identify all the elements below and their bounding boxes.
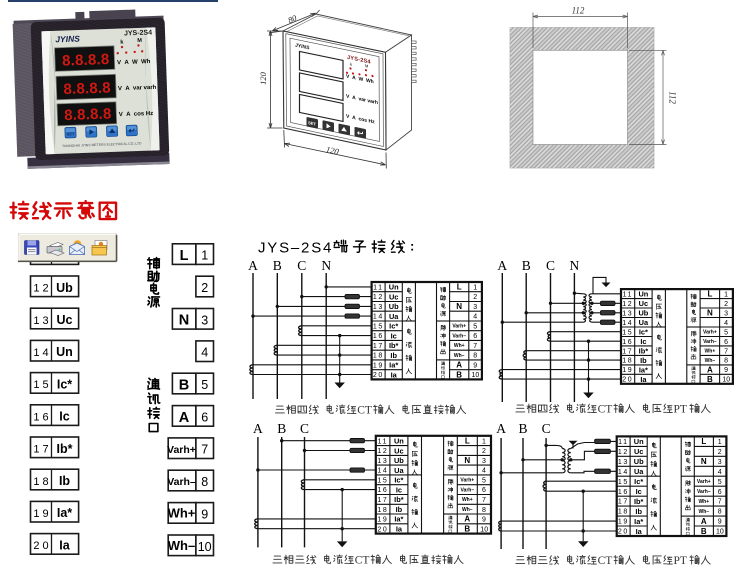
svg-text:5: 5 <box>473 323 477 330</box>
svg-text:20: 20 <box>377 526 388 533</box>
svg-text:1 2: 1 2 <box>33 283 48 295</box>
svg-text:11: 11 <box>373 285 383 292</box>
svg-text:B: B <box>701 527 707 536</box>
svg-text:Ic*: Ic* <box>394 476 403 485</box>
svg-text:Ub: Ub <box>56 281 73 295</box>
svg-text:Ub: Ub <box>634 457 644 466</box>
svg-text:17: 17 <box>618 499 629 506</box>
svg-text:Un: Un <box>394 437 404 446</box>
svg-text:Ib*: Ib* <box>394 495 404 504</box>
svg-text:3: 3 <box>201 313 208 327</box>
svg-text:Varh+: Varh+ <box>703 330 717 336</box>
svg-text:Ia*: Ia* <box>394 515 403 524</box>
svg-text:SET: SET <box>67 131 76 136</box>
svg-text:Ib: Ib <box>396 505 403 514</box>
svg-text:Ua: Ua <box>389 312 399 321</box>
svg-text:V A W Wh: V A W Wh <box>117 59 151 66</box>
svg-text:Varh–: Varh– <box>167 476 196 488</box>
svg-text:Varh–: Varh– <box>452 333 466 339</box>
svg-text:L: L <box>457 283 462 292</box>
svg-text:4: 4 <box>724 320 728 327</box>
svg-text:1 8: 1 8 <box>33 476 48 488</box>
svg-text:120: 120 <box>258 71 268 85</box>
svg-text:1: 1 <box>473 285 477 292</box>
svg-text:A: A <box>496 421 506 436</box>
svg-text:1 7: 1 7 <box>33 444 48 456</box>
svg-text:B: B <box>518 421 527 436</box>
svg-text:112: 112 <box>572 6 585 16</box>
svg-text:Ua: Ua <box>394 466 404 475</box>
svg-text:Ia*: Ia* <box>639 365 648 374</box>
svg-text:12: 12 <box>373 294 384 301</box>
svg-text:16: 16 <box>622 339 633 346</box>
svg-text:2 0: 2 0 <box>33 540 48 552</box>
svg-text:10: 10 <box>480 526 488 533</box>
svg-text:B: B <box>464 525 470 534</box>
svg-text:Ib*: Ib* <box>639 347 649 356</box>
svg-text:JYINS: JYINS <box>55 33 80 44</box>
svg-text:11: 11 <box>618 439 628 446</box>
svg-text:Ia: Ia <box>396 525 403 534</box>
svg-text:17: 17 <box>377 497 388 504</box>
svg-text:5: 5 <box>201 378 208 392</box>
svg-text:L: L <box>465 437 470 446</box>
svg-text:7: 7 <box>473 343 477 350</box>
svg-text:Ic*: Ic* <box>634 477 643 486</box>
svg-text:A: A <box>253 421 263 436</box>
svg-text:12: 12 <box>377 448 388 455</box>
svg-text:112: 112 <box>668 91 678 104</box>
svg-text:C: C <box>297 258 306 273</box>
svg-text:19: 19 <box>377 517 388 524</box>
svg-text:2: 2 <box>201 281 208 295</box>
svg-text:18: 18 <box>377 507 388 514</box>
svg-text:14: 14 <box>373 314 384 321</box>
svg-text:Ic: Ic <box>636 487 642 496</box>
svg-text:8.8.8.8: 8.8.8.8 <box>64 105 112 124</box>
svg-text:C: C <box>300 421 309 436</box>
svg-text:10: 10 <box>472 372 480 379</box>
svg-text:Ua: Ua <box>634 467 644 476</box>
svg-text:Wh+: Wh+ <box>705 349 716 355</box>
svg-text:A: A <box>497 258 507 273</box>
svg-text:Wh–: Wh– <box>705 358 716 364</box>
svg-text:Wh–: Wh– <box>699 509 710 515</box>
svg-text:A: A <box>701 517 707 526</box>
svg-text:1: 1 <box>201 249 208 263</box>
svg-text:Wh–: Wh– <box>462 507 473 513</box>
svg-text:20: 20 <box>618 529 629 536</box>
svg-text:15: 15 <box>622 329 633 336</box>
svg-text:3: 3 <box>724 310 728 317</box>
svg-text:Varh–: Varh– <box>703 339 717 345</box>
svg-text:4: 4 <box>482 468 486 475</box>
svg-text:Ia: Ia <box>640 375 647 384</box>
svg-text:Ic: Ic <box>59 410 69 424</box>
svg-text:16: 16 <box>618 489 629 496</box>
svg-text:L: L <box>180 248 189 264</box>
svg-text:Wh–: Wh– <box>454 353 465 359</box>
svg-text:Ia: Ia <box>59 538 70 552</box>
svg-text:5: 5 <box>718 479 722 486</box>
svg-text:15: 15 <box>618 479 629 486</box>
svg-text:17: 17 <box>622 348 633 355</box>
svg-text:C: C <box>546 258 555 273</box>
svg-text:Ia: Ia <box>636 527 643 536</box>
svg-text:A: A <box>248 258 258 273</box>
svg-text:Varh+: Varh+ <box>452 324 466 330</box>
svg-text:B: B <box>707 375 713 384</box>
svg-text:10: 10 <box>198 540 212 554</box>
svg-text:A: A <box>179 410 190 426</box>
svg-text:Wh+: Wh+ <box>698 499 709 505</box>
svg-text:20: 20 <box>373 372 384 379</box>
svg-text:N: N <box>707 309 713 318</box>
svg-text:15: 15 <box>377 477 388 484</box>
svg-text:Un: Un <box>389 283 399 292</box>
svg-text:C: C <box>542 421 551 436</box>
svg-text:Ib*: Ib* <box>389 341 399 350</box>
svg-text:5: 5 <box>482 477 486 484</box>
svg-text:Uc: Uc <box>639 299 648 308</box>
svg-text:JYS–2S4: JYS–2S4 <box>258 240 333 257</box>
svg-text:Uc: Uc <box>634 447 643 456</box>
svg-text:B: B <box>179 377 189 393</box>
svg-text:1 5: 1 5 <box>33 379 48 391</box>
svg-text:Uc: Uc <box>394 446 403 455</box>
svg-text:M: M <box>137 38 142 44</box>
svg-text:9: 9 <box>482 517 486 524</box>
svg-text:CT: CT <box>598 404 613 416</box>
svg-text:Wh+: Wh+ <box>168 506 196 521</box>
svg-text:7: 7 <box>482 497 486 504</box>
svg-text:10: 10 <box>716 529 724 536</box>
svg-text::: : <box>410 239 414 254</box>
svg-text:PT: PT <box>674 404 687 416</box>
svg-text:B: B <box>273 258 282 273</box>
svg-text:7: 7 <box>724 348 728 355</box>
svg-text:Ib*: Ib* <box>634 497 644 506</box>
svg-text:V A cos Hz: V A cos Hz <box>119 111 154 118</box>
svg-text:Un: Un <box>56 345 73 359</box>
svg-text:8: 8 <box>482 507 486 514</box>
svg-text:Varh+: Varh+ <box>697 479 711 485</box>
svg-text:15: 15 <box>373 323 384 330</box>
svg-text:B: B <box>277 421 286 436</box>
svg-text:Ib*: Ib* <box>57 442 73 456</box>
svg-text:A: A <box>464 515 470 524</box>
svg-text:11: 11 <box>623 291 633 298</box>
svg-text:6: 6 <box>718 489 722 496</box>
svg-text:N: N <box>321 258 331 273</box>
svg-text:Ib: Ib <box>390 351 397 360</box>
svg-text:14: 14 <box>622 320 633 327</box>
svg-text:CT: CT <box>357 405 372 417</box>
svg-text:19: 19 <box>622 367 633 374</box>
svg-text:4: 4 <box>201 346 208 360</box>
svg-text:Ia*: Ia* <box>634 517 643 526</box>
svg-text:13: 13 <box>618 459 629 466</box>
svg-text:1: 1 <box>482 438 486 445</box>
svg-text:3: 3 <box>482 458 486 465</box>
svg-text:Un: Un <box>634 437 644 446</box>
svg-text:12: 12 <box>618 449 629 456</box>
svg-text:Varh–: Varh– <box>697 489 711 495</box>
svg-text:9: 9 <box>473 362 477 369</box>
svg-text:1 9: 1 9 <box>33 508 48 520</box>
svg-text:2: 2 <box>718 449 722 456</box>
svg-text:Ic*: Ic* <box>389 322 398 331</box>
svg-text:3: 3 <box>718 459 722 466</box>
svg-text:Ib: Ib <box>59 474 70 488</box>
svg-text:9: 9 <box>718 519 722 526</box>
svg-text:Ic: Ic <box>640 337 646 346</box>
svg-text:10: 10 <box>722 377 730 384</box>
svg-text:14: 14 <box>377 468 388 475</box>
svg-text:20: 20 <box>622 377 633 384</box>
svg-text:Ic*: Ic* <box>639 328 648 337</box>
svg-text:14: 14 <box>618 469 629 476</box>
svg-text:19: 19 <box>618 519 629 526</box>
svg-text:A: A <box>456 361 462 370</box>
svg-text:L: L <box>707 290 712 299</box>
svg-text:3: 3 <box>473 304 477 311</box>
svg-text:Ia: Ia <box>391 370 398 379</box>
svg-text:2: 2 <box>724 301 728 308</box>
svg-text:8: 8 <box>724 358 728 365</box>
svg-text:A: A <box>707 365 713 374</box>
svg-text:B: B <box>522 258 531 273</box>
svg-text:N: N <box>701 457 707 466</box>
svg-text:16: 16 <box>373 333 384 340</box>
svg-text:Ub: Ub <box>394 456 404 465</box>
svg-text:Wh+: Wh+ <box>454 343 465 349</box>
svg-text:7: 7 <box>201 443 208 457</box>
svg-text:1: 1 <box>718 439 722 446</box>
svg-text:Wh–: Wh– <box>168 538 195 553</box>
svg-text:8.8.8.8: 8.8.8.8 <box>62 51 110 70</box>
svg-text:7: 7 <box>718 499 722 506</box>
svg-text:8: 8 <box>718 509 722 516</box>
svg-text:Varh–: Varh– <box>460 487 474 493</box>
svg-text:CT: CT <box>598 555 613 567</box>
svg-text:Ib: Ib <box>640 356 647 365</box>
svg-text:13: 13 <box>373 304 384 311</box>
svg-text:Ic: Ic <box>396 485 402 494</box>
svg-text:PT: PT <box>674 555 687 567</box>
svg-text:Wh+: Wh+ <box>462 497 473 503</box>
svg-text:18: 18 <box>622 358 633 365</box>
svg-text:N: N <box>464 456 470 465</box>
svg-text:2: 2 <box>473 294 477 301</box>
svg-text:Ic*: Ic* <box>57 377 72 391</box>
svg-text:9: 9 <box>201 507 208 521</box>
svg-text:Uc: Uc <box>389 292 398 301</box>
svg-text:Ia*: Ia* <box>389 361 398 370</box>
svg-text:N: N <box>570 258 580 273</box>
svg-text:18: 18 <box>618 509 629 516</box>
svg-text:8: 8 <box>201 475 208 489</box>
svg-text:8.8.8.8: 8.8.8.8 <box>63 79 111 98</box>
svg-text:Ib: Ib <box>635 507 642 516</box>
svg-text:1 6: 1 6 <box>33 411 48 423</box>
svg-text:L: L <box>701 437 706 446</box>
svg-text:8: 8 <box>473 353 477 360</box>
svg-text:4: 4 <box>718 469 722 476</box>
svg-text:1 3: 1 3 <box>33 315 48 327</box>
svg-text:1: 1 <box>724 291 728 298</box>
svg-text:6: 6 <box>201 410 208 424</box>
svg-text:18: 18 <box>373 353 384 360</box>
svg-text:5: 5 <box>724 329 728 336</box>
svg-text:Uc: Uc <box>57 313 73 327</box>
svg-text:6: 6 <box>482 487 486 494</box>
svg-text:19: 19 <box>373 362 384 369</box>
svg-text:16: 16 <box>377 487 388 494</box>
svg-text:CT: CT <box>355 555 370 567</box>
svg-text:N: N <box>456 302 462 311</box>
svg-text:Ic: Ic <box>391 331 397 340</box>
svg-text:6: 6 <box>473 333 477 340</box>
svg-text:4: 4 <box>473 314 477 321</box>
svg-text:13: 13 <box>377 458 388 465</box>
svg-text:11: 11 <box>378 438 388 445</box>
svg-text:N: N <box>179 313 189 329</box>
svg-text:2: 2 <box>482 448 486 455</box>
svg-text:17: 17 <box>373 343 384 350</box>
svg-text:1 4: 1 4 <box>33 347 48 359</box>
svg-text:6: 6 <box>724 339 728 346</box>
svg-text:Ia*: Ia* <box>57 506 72 520</box>
svg-text:Un: Un <box>638 290 648 299</box>
svg-text:Varh+: Varh+ <box>167 444 196 456</box>
svg-text:9: 9 <box>724 367 728 374</box>
svg-text:B: B <box>456 370 462 379</box>
svg-text:Ub: Ub <box>638 309 648 318</box>
svg-text:13: 13 <box>622 310 633 317</box>
svg-text:Ub: Ub <box>389 302 399 311</box>
svg-text:Ua: Ua <box>639 318 649 327</box>
svg-text:12: 12 <box>622 301 633 308</box>
svg-text:80: 80 <box>286 12 298 25</box>
svg-text:Varh+: Varh+ <box>460 478 474 484</box>
svg-text:JYS-2S4: JYS-2S4 <box>124 29 152 37</box>
